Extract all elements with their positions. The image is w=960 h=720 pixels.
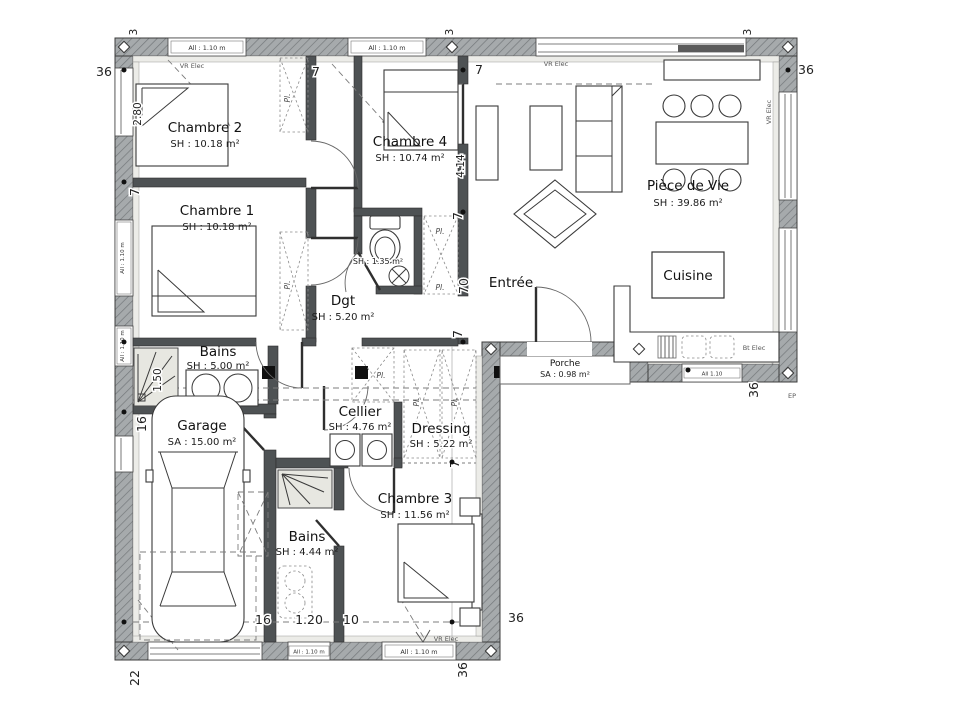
svg-text:Chambre 1: Chambre 1 bbox=[180, 203, 254, 219]
window-label: All : 1.10 m bbox=[120, 330, 126, 362]
dim-16: 16 bbox=[255, 612, 271, 627]
insulation-right bbox=[773, 62, 779, 364]
pl-label: Pl. bbox=[412, 398, 421, 407]
pl-label: Pl. bbox=[436, 227, 445, 236]
window-label: All 1.10 bbox=[702, 372, 723, 378]
svg-text:SH : 5.20 m²: SH : 5.20 m² bbox=[312, 312, 375, 323]
svg-text:Garage: Garage bbox=[177, 418, 226, 434]
dim-7: 7 bbox=[475, 62, 483, 77]
dim-3: 3 bbox=[742, 29, 754, 36]
porch: Porche SA : 0.98 m² bbox=[500, 356, 630, 384]
dim-36: 36 bbox=[798, 62, 814, 77]
dim-16: 16 bbox=[134, 416, 149, 432]
ep-label: EP bbox=[788, 392, 796, 400]
svg-text:Pièce de Vie: Pièce de Vie bbox=[647, 178, 729, 194]
svg-text:SA : 15.00 m²: SA : 15.00 m² bbox=[168, 437, 237, 448]
vr-elec-label: VR Elec bbox=[434, 635, 459, 643]
dim-36: 36 bbox=[746, 382, 761, 398]
nightstand bbox=[460, 498, 480, 516]
dim-3: 3 bbox=[444, 29, 456, 36]
vr-elec-label: VR Elec bbox=[544, 60, 569, 68]
dim-70: 70 bbox=[456, 278, 471, 294]
svg-text:Chambre 4: Chambre 4 bbox=[373, 134, 447, 150]
dim-1-20: 1.20 bbox=[295, 612, 323, 627]
sofa bbox=[576, 86, 622, 192]
window-bottom-bains: All : 1.10 m bbox=[288, 642, 330, 660]
pl-label: Pl. bbox=[283, 281, 292, 290]
window-label: All : 1.10 m bbox=[120, 242, 126, 274]
dim-1-50: 1.50 bbox=[152, 368, 164, 391]
svg-text:SH : 10.18 m²: SH : 10.18 m² bbox=[170, 139, 239, 150]
window-top-2: All : 1.10 m bbox=[348, 38, 426, 56]
dim-2-80: 2.80 bbox=[132, 102, 144, 125]
closet-chambre1: Pl. bbox=[280, 232, 308, 330]
svg-text:Cellier: Cellier bbox=[339, 404, 382, 420]
dim-36: 36 bbox=[96, 64, 112, 79]
room-label-bains1: Bains SH : 5.00 m² bbox=[187, 344, 250, 372]
svg-text:Bains: Bains bbox=[200, 344, 237, 360]
bed-chambre1 bbox=[152, 226, 256, 316]
dim-4-14: 4.14 bbox=[455, 154, 467, 178]
svg-text:Chambre 2: Chambre 2 bbox=[168, 120, 242, 136]
window-label: All : 1.10 m bbox=[293, 650, 325, 656]
pl-label: Pl. bbox=[283, 94, 292, 103]
door-chambre2 bbox=[311, 141, 358, 188]
svg-text:Cuisine: Cuisine bbox=[663, 268, 712, 284]
pl-label: Pl. bbox=[436, 283, 445, 292]
door-bains bbox=[256, 342, 302, 388]
window-left-chambre2 bbox=[115, 68, 133, 136]
closet-wc-side: Pl. Pl. bbox=[424, 216, 458, 294]
window-right-2 bbox=[779, 228, 797, 332]
room-name-porche: Porche bbox=[550, 359, 581, 369]
entrance-door bbox=[527, 287, 592, 356]
window-label: All : 1.10 m bbox=[188, 44, 225, 52]
vanity-bains2 bbox=[278, 566, 312, 618]
toilet bbox=[370, 216, 409, 286]
dim-7: 7 bbox=[127, 188, 142, 196]
svg-text:SH : 10.18 m²: SH : 10.18 m² bbox=[182, 222, 251, 233]
room-label-cellier: Cellier SH : 4.76 m² bbox=[329, 404, 392, 433]
window-left-chambre1: All : 1.10 m bbox=[115, 220, 133, 296]
tv-unit bbox=[476, 106, 498, 180]
svg-text:Chambre 3: Chambre 3 bbox=[378, 491, 452, 507]
kitchen-appliance bbox=[658, 336, 676, 358]
room-label-cuisine: Cuisine bbox=[652, 252, 724, 298]
svg-text:SH : 39.86 m²: SH : 39.86 m² bbox=[653, 198, 722, 209]
washing-machines bbox=[330, 434, 392, 466]
room-label-chambre3: Chambre 3 SH : 11.56 m² bbox=[378, 491, 452, 521]
room-label-piece-de-vie: Pièce de Vie SH : 39.86 m² bbox=[647, 178, 729, 209]
room-label-dressing: Dressing SH : 5.22 m² bbox=[410, 421, 473, 450]
sideboard bbox=[664, 60, 760, 80]
room-label-chambre2: Chambre 2 SH : 10.18 m² bbox=[168, 120, 242, 150]
window-label: All : 1.10 m bbox=[400, 648, 437, 656]
svg-text:SH : 10.74 m²: SH : 10.74 m² bbox=[375, 153, 444, 164]
dim-36: 36 bbox=[508, 610, 524, 625]
floor-plan-svg: All : 1.10 m All : 1.10 m bbox=[0, 0, 960, 720]
window-bottom-chambre3: All : 1.10 m bbox=[382, 642, 456, 660]
window-left-bains: All : 1.10 m bbox=[115, 326, 133, 366]
svg-text:SH : 4.44 m²: SH : 4.44 m² bbox=[276, 547, 339, 558]
car-mirror bbox=[146, 470, 153, 482]
vr-elec-label: VR Elec bbox=[765, 99, 773, 124]
svg-text:SH : 4.76 m²: SH : 4.76 m² bbox=[329, 422, 392, 433]
sliding-panel bbox=[678, 45, 744, 52]
room-label-chambre4: Chambre 4 SH : 10.74 m² bbox=[373, 134, 447, 164]
garage-door bbox=[148, 642, 262, 660]
window-left-garage bbox=[115, 436, 133, 472]
room-label-chambre1: Chambre 1 SH : 10.18 m² bbox=[180, 203, 254, 233]
shower-bains2 bbox=[278, 470, 332, 508]
window-cuisine: All 1.10 bbox=[682, 364, 742, 382]
svg-text:SH : 5.22 m²: SH : 5.22 m² bbox=[410, 439, 473, 450]
svg-text:SH : 11.56 m²: SH : 11.56 m² bbox=[380, 510, 449, 521]
closet-chambre2: Pl. bbox=[280, 58, 308, 132]
room-label-wc-area: SH : 1.35 m² bbox=[353, 257, 403, 266]
side-table bbox=[530, 106, 562, 170]
dining-set bbox=[656, 95, 748, 191]
nightstand bbox=[460, 608, 480, 626]
window-right-1 bbox=[779, 92, 797, 200]
room-label-entree: Entrée bbox=[489, 275, 533, 291]
bt-elec-label: Bt Elec bbox=[743, 344, 766, 352]
room-label-garage: Garage SA : 15.00 m² bbox=[168, 418, 237, 448]
dim-7: 7 bbox=[447, 460, 462, 468]
dim-7: 7 bbox=[450, 330, 465, 338]
svg-text:Bains: Bains bbox=[289, 529, 326, 545]
room-area-porche: SA : 0.98 m² bbox=[540, 370, 590, 379]
wall-wing-right bbox=[482, 342, 500, 660]
dim-36: 36 bbox=[455, 662, 470, 678]
svg-text:Dressing: Dressing bbox=[412, 421, 471, 437]
pl-label: Pl. bbox=[450, 398, 459, 407]
room-label-dgt: Dgt SH : 5.20 m² bbox=[312, 293, 375, 323]
dim-10: 10 bbox=[343, 612, 359, 627]
svg-text:SH : 5.00 m²: SH : 5.00 m² bbox=[187, 361, 250, 372]
bay-window bbox=[536, 38, 746, 56]
post bbox=[355, 366, 368, 379]
pl-label: Pl. bbox=[377, 371, 386, 380]
car-mirror bbox=[243, 470, 250, 482]
floor-plan-page: All : 1.10 m All : 1.10 m bbox=[0, 0, 960, 720]
dim-7: 7 bbox=[312, 64, 320, 79]
window-label: All : 1.10 m bbox=[368, 44, 405, 52]
window-top-1: All : 1.10 m bbox=[168, 38, 246, 56]
svg-text:Dgt: Dgt bbox=[331, 293, 355, 309]
vr-elec-label: VR Elec bbox=[180, 62, 205, 70]
dim-22: 22 bbox=[127, 670, 142, 686]
dim-3: 3 bbox=[128, 29, 140, 36]
